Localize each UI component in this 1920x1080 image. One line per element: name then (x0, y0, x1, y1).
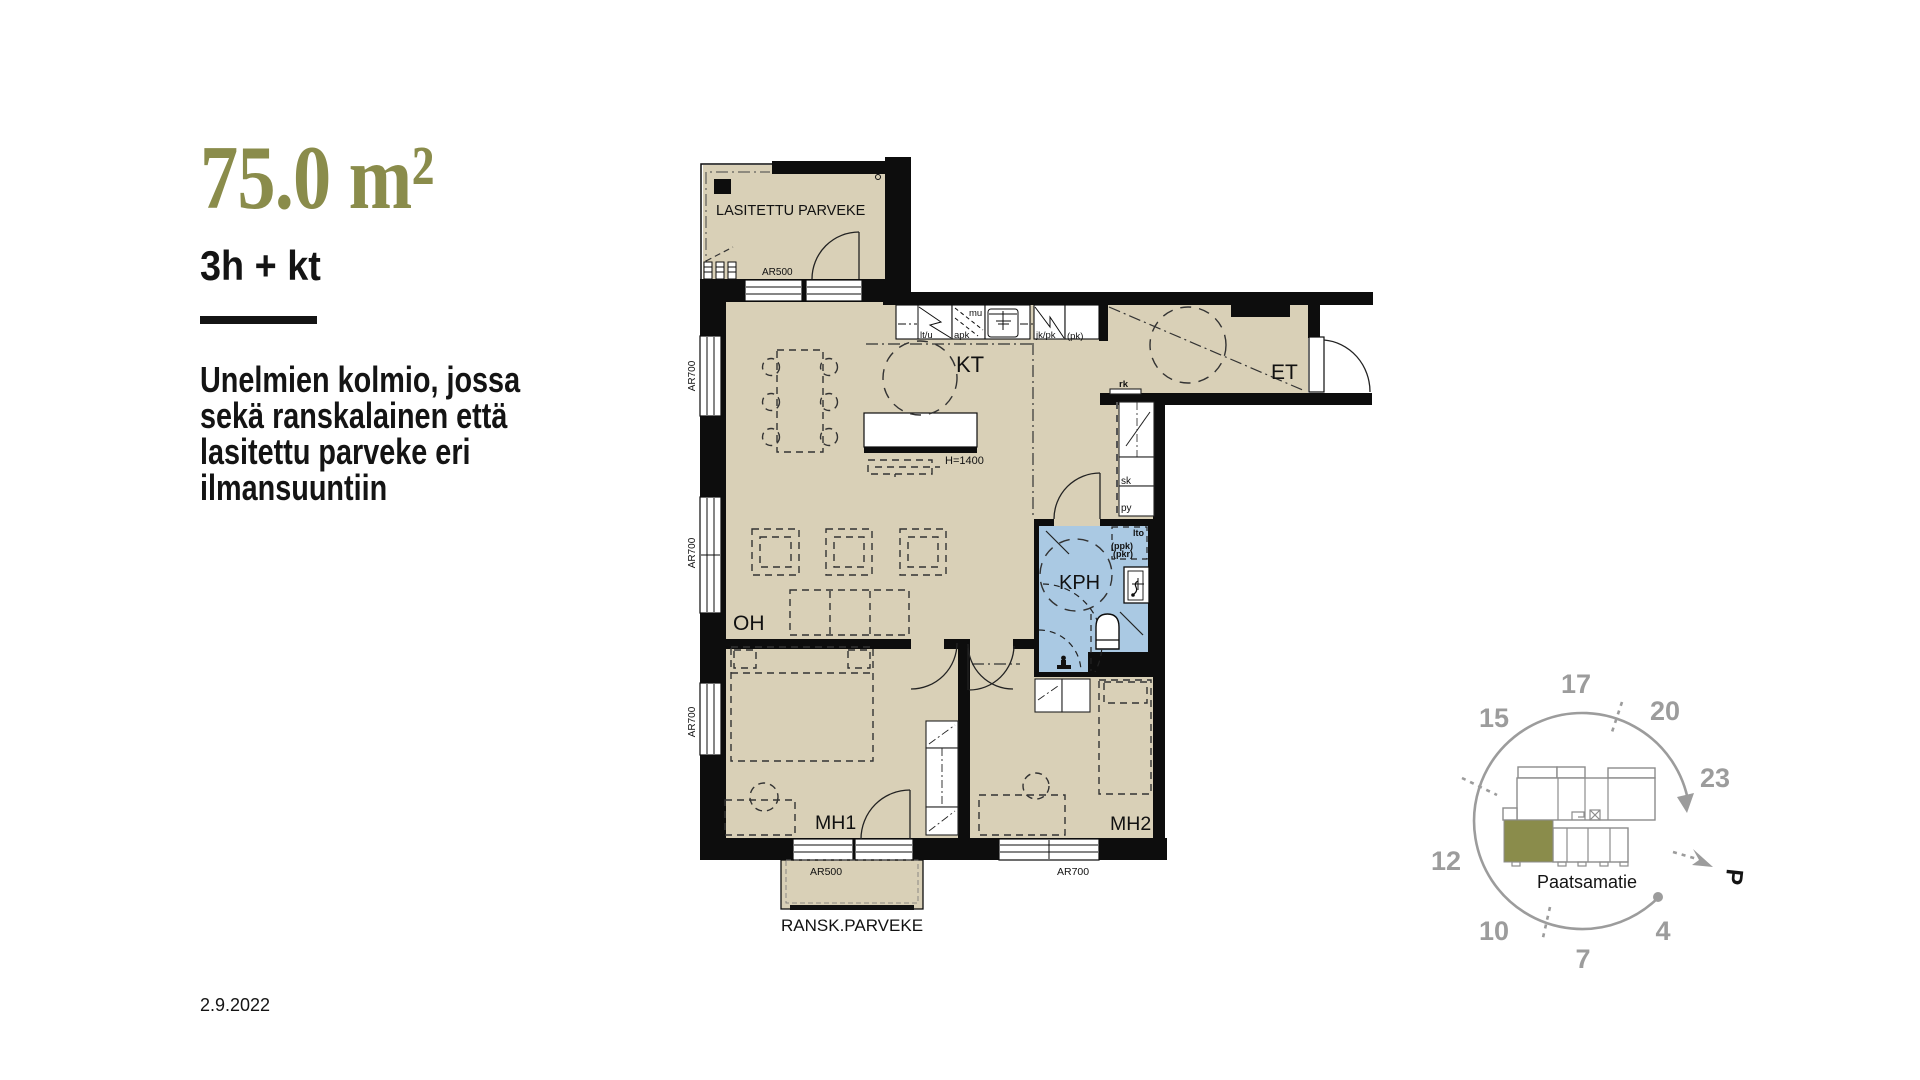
svg-text:7: 7 (1575, 944, 1590, 974)
svg-text:py: py (1121, 503, 1132, 514)
svg-text:rk: rk (1119, 379, 1129, 390)
svg-text:AR500: AR500 (762, 267, 793, 278)
svg-text:lto: lto (1133, 528, 1144, 538)
svg-text:23: 23 (1700, 763, 1730, 793)
svg-text:10: 10 (1479, 916, 1509, 946)
svg-text:KPH: KPH (1059, 572, 1100, 594)
svg-text:H=1400: H=1400 (945, 455, 984, 467)
svg-text:RANSK.PARVEKE: RANSK.PARVEKE (781, 916, 923, 935)
svg-text:MH1: MH1 (815, 812, 856, 834)
svg-text:AR700: AR700 (1057, 866, 1089, 878)
svg-text:(pk): (pk) (1067, 331, 1083, 342)
svg-text:jk/pk: jk/pk (1035, 330, 1056, 341)
svg-text:(pkr): (pkr) (1113, 549, 1133, 559)
svg-text:mu: mu (969, 308, 982, 319)
svg-text:LASITETTU PARVEKE: LASITETTU PARVEKE (716, 203, 866, 219)
svg-text:20: 20 (1650, 696, 1680, 726)
svg-text:Paatsamatie: Paatsamatie (1537, 872, 1637, 892)
svg-text:17: 17 (1561, 669, 1591, 699)
svg-text:P: P (1719, 868, 1748, 887)
svg-text:12: 12 (1431, 846, 1461, 876)
svg-text:AR700: AR700 (687, 706, 698, 737)
svg-text:KT: KT (956, 352, 984, 377)
svg-text:MH2: MH2 (1110, 813, 1151, 835)
svg-text:lt/u: lt/u (920, 330, 933, 341)
svg-text:OH: OH (733, 612, 765, 635)
svg-text:AR700: AR700 (687, 537, 698, 568)
svg-text:AR700: AR700 (687, 360, 698, 391)
svg-text:apk: apk (954, 330, 970, 341)
svg-text:15: 15 (1479, 703, 1509, 733)
svg-text:4: 4 (1655, 916, 1670, 946)
svg-text:ET: ET (1271, 361, 1298, 384)
svg-text:sk: sk (1121, 476, 1132, 487)
svg-text:AR500: AR500 (810, 866, 842, 878)
